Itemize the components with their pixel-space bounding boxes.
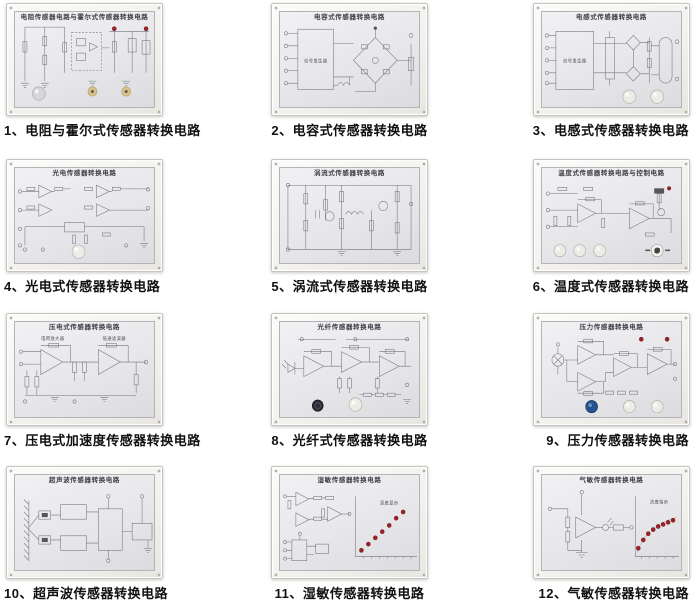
board-face: 电阻传感器电路与霍尔式传感器转换电路 [14,11,155,108]
stage-label-lowpass: 低通滤波器 [103,335,127,342]
product-unit-6: 温度式传感器转换电路与控制电路 [533,159,690,295]
knob [574,244,586,256]
board-title: 光电传感器转换电路 [15,170,154,178]
caption: 10、超声波传感器转换电路 [4,583,161,602]
board-face: 温度式传感器转换电路与控制电路 [541,167,682,264]
board-title: 气敏传感器转换电路 [542,477,681,485]
circuit-diagram-fiber-optic [280,333,419,416]
catalog-cell-9: 压力传感器转换电路 [466,305,700,460]
sensor-board-3: 电感式传感器转换电路 信号发生器 [533,3,690,116]
knob [623,400,635,412]
catalog-cell-8: 光纤传感器转换电路 [233,305,466,460]
board-face: 压电式传感器转换电路 电荷放大器 低通滤波器 [14,321,155,418]
sensor-board-10: 超声波传感器转换电路 [6,466,163,579]
product-unit-1: 电阻传感器电路与霍尔式传感器转换电路 [6,3,163,139]
circuit-diagram-resistor-hall [15,23,154,106]
led-indicator [665,337,669,341]
product-unit-10: 超声波传感器转换电路 [6,466,163,602]
catalog-cell-6: 温度式传感器转换电路与控制电路 [466,150,700,305]
product-unit-9: 压力传感器转换电路 [533,313,690,449]
sensor-board-12: 气敏传感器转换电路 浓度指示 [533,466,690,579]
knob [349,398,362,411]
graph-label: 湿度显示 [380,500,399,507]
sensor-board-7: 压电式传感器转换电路 电荷放大器 低通滤波器 [6,313,163,426]
knob [651,400,663,412]
board-face: 光电传感器转换电路 [14,167,155,264]
knob [554,244,566,256]
product-unit-11: 湿敏传感器转换电路 [271,466,428,602]
board-title: 电阻传感器电路与霍尔式传感器转换电路 [15,14,154,22]
caption: 5、涡流式传感器转换电路 [271,276,428,295]
sensor-board-1: 电阻传感器电路与霍尔式传感器转换电路 [6,3,163,116]
board-title: 涡流式传感器转换电路 [280,170,419,178]
caption: 11、湿敏传感器转换电路 [271,583,428,602]
led-indicator [112,27,116,31]
circuit-diagram-gas: 浓度指示 [542,486,681,569]
catalog-cell-7: 压电式传感器转换电路 电荷放大器 低通滤波器 [0,305,233,460]
sensor-board-8: 光纤传感器转换电路 [271,313,428,426]
knob [623,90,636,103]
board-face: 电感式传感器转换电路 信号发生器 [541,11,682,108]
circuit-diagram-capacitive: 信号发生器 [280,23,419,106]
caption: 6、温度式传感器转换电路 [532,276,689,295]
knob [594,244,606,256]
circuit-diagram-ultrasonic [15,486,154,569]
caption: 2、电容式传感器转换电路 [271,120,428,139]
sensor-board-5: 涡流式传感器转换电路 [271,159,428,272]
board-title: 压力传感器转换电路 [542,324,681,332]
circuit-diagram-photoelectric [15,179,154,262]
board-title: 压电式传感器转换电路 [15,324,154,332]
led-indicator [667,186,671,190]
catalog-grid: 电阻传感器电路与霍尔式传感器转换电路 [0,0,700,603]
product-unit-7: 压电式传感器转换电路 电荷放大器 低通滤波器 [6,313,163,449]
board-face: 超声波传感器转换电路 [14,474,155,571]
catalog-cell-4: 光电传感器转换电路 [0,150,233,305]
catalog-cell-12: 气敏传感器转换电路 浓度指示 [466,460,700,603]
knob [651,90,664,103]
led-bar-graph: 湿度显示 [355,496,417,558]
board-face: 气敏传感器转换电路 浓度指示 [541,474,682,571]
catalog-cell-2: 电容式传感器转换电路 信号发生器 [233,0,466,150]
board-face: 湿敏传感器转换电路 [279,474,420,571]
product-unit-8: 光纤传感器转换电路 [271,313,428,449]
knob [72,245,85,258]
circuit-diagram-pressure [542,333,681,416]
product-unit-4: 光电传感器转换电路 [6,159,163,295]
led-indicator [144,27,148,31]
board-title: 湿敏传感器转换电路 [280,477,419,485]
led-indicator [639,337,643,341]
circuit-diagram-humidity: 湿度显示 [280,486,419,569]
catalog-cell-3: 电感式传感器转换电路 信号发生器 [466,0,700,150]
graph-label: 浓度指示 [650,499,669,506]
knob [586,400,598,412]
caption: 1、电阻与霍尔式传感器转换电路 [4,120,161,139]
caption: 9、压力传感器转换电路 [532,430,689,449]
knob [312,400,323,411]
sensor-board-2: 电容式传感器转换电路 信号发生器 [271,3,428,116]
board-title: 电感式传感器转换电路 [542,14,681,22]
circuit-diagram-temperature [542,179,681,262]
circuit-diagram-piezoelectric: 电荷放大器 低通滤波器 [15,333,154,416]
catalog-cell-1: 电阻传感器电路与霍尔式传感器转换电路 [0,0,233,150]
sensor-board-4: 光电传感器转换电路 [6,159,163,272]
product-unit-2: 电容式传感器转换电路 信号发生器 [271,3,428,139]
sensor-board-11: 湿敏传感器转换电路 [271,466,428,579]
caption: 7、压电式加速度传感器转换电路 [4,430,161,449]
led-bar-graph: 浓度指示 [635,496,679,558]
caption: 8、光纤式传感器转换电路 [271,430,428,449]
board-face: 涡流式传感器转换电路 [279,167,420,264]
stage-label-charge-amp: 电荷放大器 [41,335,65,342]
catalog-cell-10: 超声波传感器转换电路 [0,460,233,603]
caption: 3、电感式传感器转换电路 [532,120,689,139]
caption: 12、气敏传感器转换电路 [532,583,689,602]
product-unit-5: 涡流式传感器转换电路 5、 [271,159,428,295]
circuit-diagram-eddy-current [280,179,419,262]
product-unit-3: 电感式传感器转换电路 信号发生器 [533,3,690,139]
circuit-diagram-inductive: 信号发生器 [542,23,681,106]
product-unit-12: 气敏传感器转换电路 浓度指示 [533,466,690,602]
board-title: 温度式传感器转换电路与控制电路 [542,170,681,178]
catalog-cell-11: 湿敏传感器转换电路 [233,460,466,603]
signal-generator-label: 信号发生器 [563,57,587,64]
knob [32,87,45,100]
sensor-board-9: 压力传感器转换电路 [533,313,690,426]
board-face: 压力传感器转换电路 [541,321,682,418]
board-face: 光纤传感器转换电路 [279,321,420,418]
catalog-cell-5: 涡流式传感器转换电路 5、 [233,150,466,305]
sensor-board-6: 温度式传感器转换电路与控制电路 [533,159,690,272]
board-title: 超声波传感器转换电路 [15,477,154,485]
signal-generator-label: 信号发生器 [304,57,328,64]
board-title: 光纤传感器转换电路 [280,324,419,332]
caption: 4、光电式传感器转换电路 [4,276,161,295]
board-title: 电容式传感器转换电路 [280,14,419,22]
board-face: 电容式传感器转换电路 信号发生器 [279,11,420,108]
